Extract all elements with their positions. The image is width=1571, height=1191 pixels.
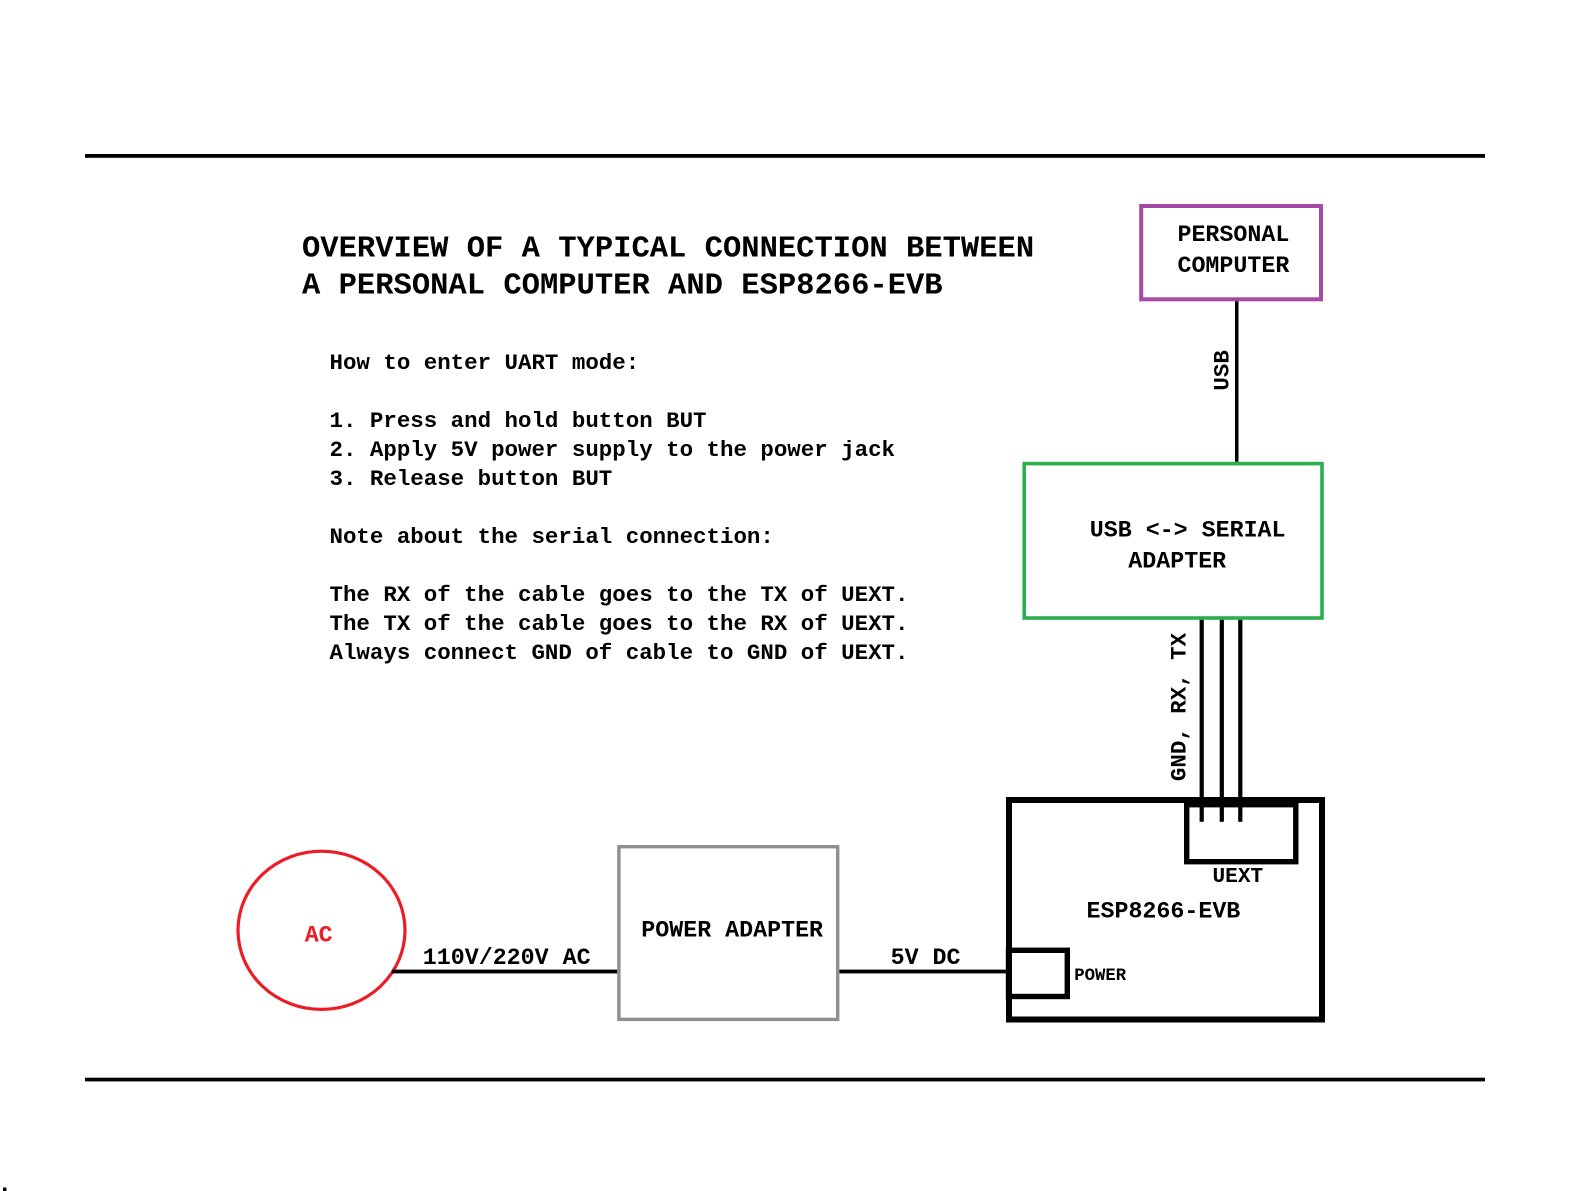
svg-text:The RX of the cable goes to th: The RX of the cable goes to the TX of UE… — [330, 582, 909, 608]
svg-text:110V/220V AC: 110V/220V AC — [423, 945, 591, 971]
svg-text:GND, RX, TX: GND, RX, TX — [1167, 632, 1193, 781]
svg-text:USB <-> SERIAL: USB <-> SERIAL — [1090, 518, 1286, 544]
svg-text:POWER ADAPTER: POWER ADAPTER — [641, 918, 823, 944]
svg-text:Note about the serial connecti: Note about the serial connection: — [330, 524, 774, 550]
svg-text:A PERSONAL COMPUTER AND ESP826: A PERSONAL COMPUTER AND ESP8266-EVB — [302, 270, 943, 304]
svg-text:5V DC: 5V DC — [891, 945, 961, 971]
svg-text:COMPUTER: COMPUTER — [1177, 253, 1289, 279]
svg-text:PERSONAL: PERSONAL — [1177, 222, 1289, 248]
svg-text:USB: USB — [1210, 350, 1236, 390]
svg-text:3. Release button BUT: 3. Release button BUT — [330, 466, 613, 492]
svg-text:OVERVIEW OF A TYPICAL CONNECTI: OVERVIEW OF A TYPICAL CONNECTION BETWEEN — [302, 232, 1034, 266]
svg-text:The TX of the cable goes to th: The TX of the cable goes to the RX of UE… — [330, 611, 909, 637]
svg-text:POWER: POWER — [1074, 967, 1126, 986]
svg-text:AC: AC — [305, 922, 333, 948]
svg-text:ESP8266-EVB: ESP8266-EVB — [1087, 899, 1241, 925]
svg-text:UEXT: UEXT — [1213, 865, 1264, 889]
svg-text:Always connect GND of cable to: Always connect GND of cable to GND of UE… — [330, 640, 909, 666]
svg-text:How to enter UART mode:: How to enter UART mode: — [330, 350, 640, 376]
svg-text:1. Press and hold button BUT: 1. Press and hold button BUT — [330, 408, 707, 434]
svg-text:ADAPTER: ADAPTER — [1128, 549, 1226, 575]
svg-text:2. Apply 5V power supply to th: 2. Apply 5V power supply to the power ja… — [330, 437, 896, 463]
